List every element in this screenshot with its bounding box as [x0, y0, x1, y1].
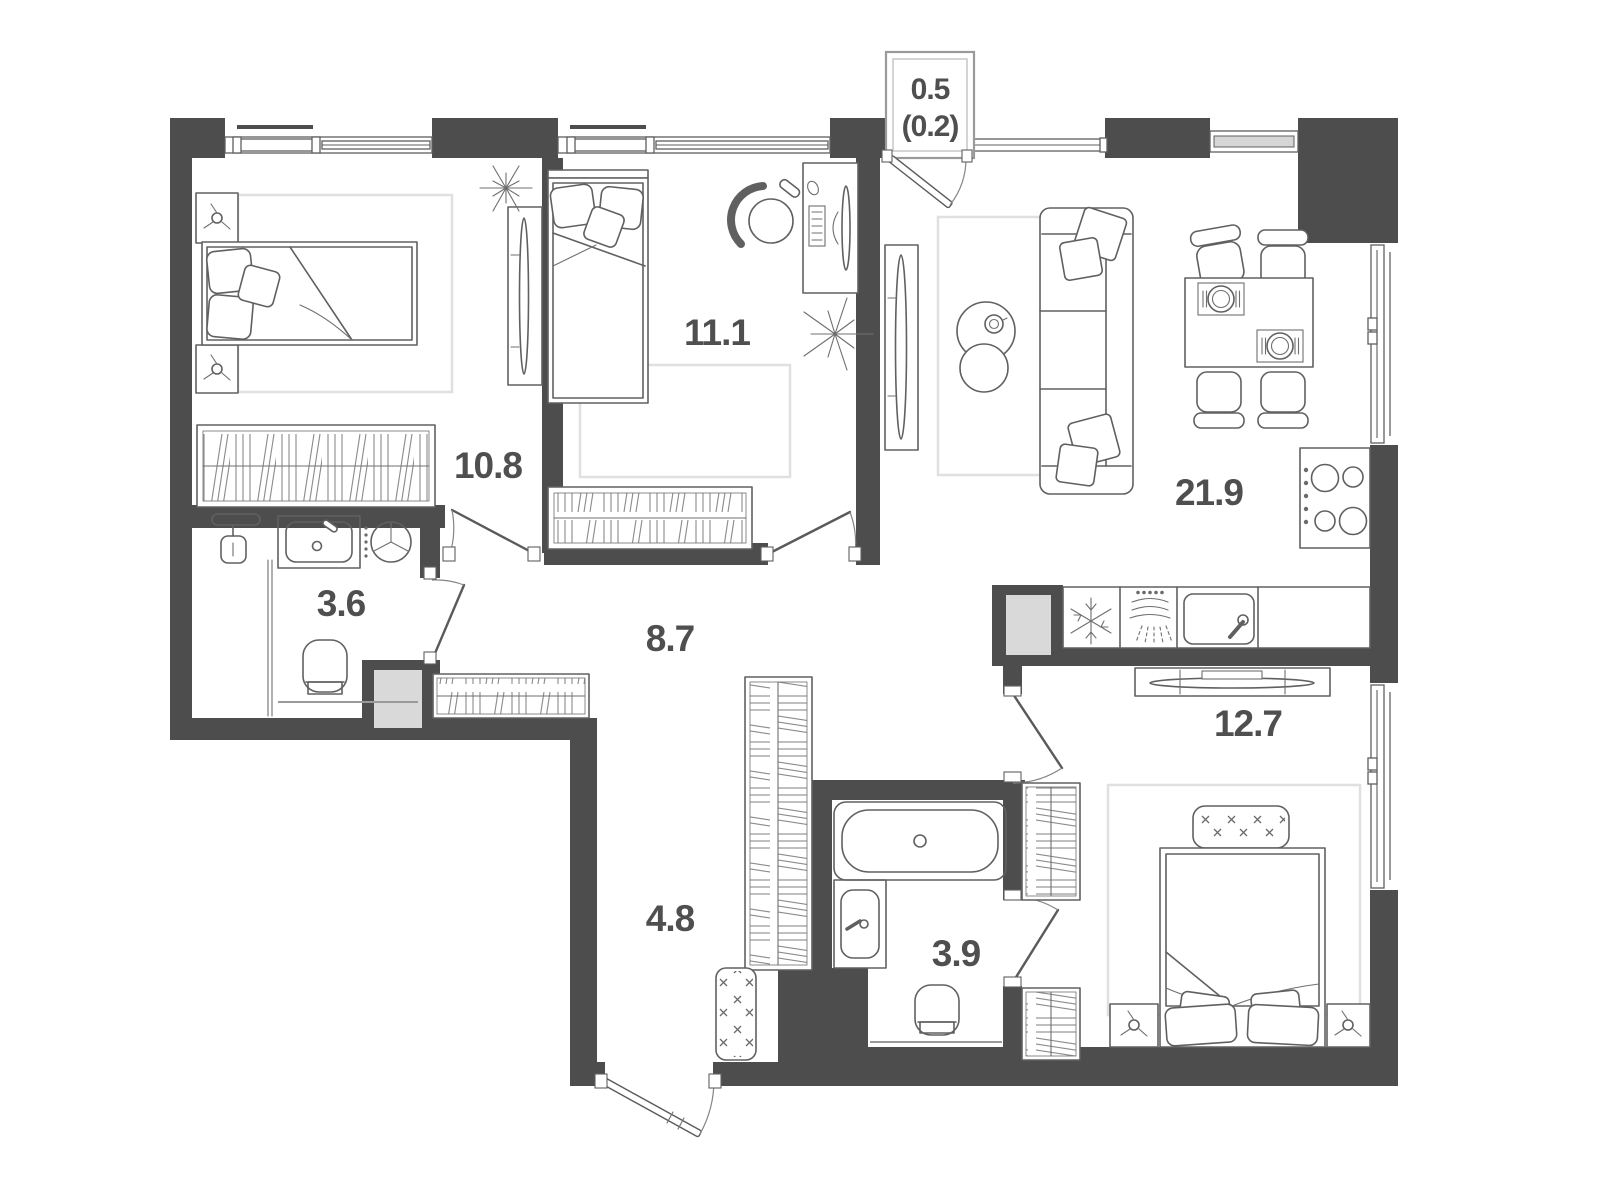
shoe-cabinet — [433, 674, 589, 718]
wardrobe-bedroom-3b — [1022, 988, 1080, 1060]
kitchen-counter — [1063, 587, 1370, 648]
duct-hallway — [374, 670, 422, 728]
balcony-area-label: 0.5 — [911, 73, 950, 106]
bed-2 — [548, 170, 648, 403]
bed-bench — [1193, 806, 1289, 848]
balcony-area-secondary-label: (0.2) — [902, 110, 959, 143]
wardrobe-bedroom-2 — [548, 487, 752, 549]
tv-unit-living — [885, 245, 918, 450]
tv-unit-bedroom-1 — [508, 207, 542, 385]
duct-kitchen — [1006, 595, 1051, 655]
place-setting — [1198, 283, 1244, 315]
nightstand-1a — [196, 193, 238, 243]
door-bathroom-left — [424, 567, 464, 664]
glass-partition — [268, 560, 272, 716]
label-living-area: 21.9 — [1175, 472, 1243, 513]
bathtub — [834, 802, 1006, 880]
bed-pillow — [1247, 1004, 1319, 1046]
place-setting — [1257, 330, 1303, 362]
door-bathroom-right — [1004, 890, 1058, 987]
nightstand-3b — [1327, 1004, 1370, 1047]
balcony: 0.5 (0.2) — [886, 52, 974, 158]
window-bedroom-2 — [558, 125, 830, 153]
bed-3 — [1160, 848, 1325, 1047]
window-living-top — [966, 138, 1107, 152]
door-entry — [595, 1074, 721, 1137]
tv-shelf-bedroom-3 — [1135, 668, 1330, 696]
label-bathroom-right-area: 3.9 — [932, 933, 981, 974]
label-bedroom-1-area: 10.8 — [454, 445, 522, 486]
sofa — [1040, 206, 1133, 494]
bathroom-sink-right — [834, 880, 886, 968]
floor-plan-page: 0.5 (0.2) — [0, 0, 1600, 1200]
sofa-pillow — [1056, 444, 1099, 487]
door-bedroom-1 — [443, 510, 540, 561]
label-hallway-area: 8.7 — [646, 618, 694, 659]
dining-set — [1185, 224, 1313, 428]
coffee-tables — [957, 302, 1015, 392]
door-bedroom-2 — [761, 512, 861, 561]
desk — [803, 163, 858, 293]
bedroom-2-furniture — [548, 163, 873, 549]
window-bedroom-3-right — [1368, 685, 1390, 888]
window-living-right — [1368, 245, 1390, 443]
sofa-pillow — [1059, 237, 1103, 281]
window-bedroom-1 — [225, 125, 432, 153]
wardrobe-bedroom-3a — [1022, 783, 1080, 900]
nightstand-3a — [1110, 1004, 1158, 1047]
window-dining-top — [1210, 131, 1298, 152]
label-bedroom-3-area: 12.7 — [1214, 703, 1282, 744]
toilet-right — [915, 985, 959, 1035]
bed-pillow — [1165, 1004, 1237, 1047]
dining-chair — [1194, 372, 1244, 428]
desk-chair — [731, 178, 801, 244]
nightstand-1b — [196, 345, 238, 393]
door-bedroom-3 — [1004, 686, 1062, 783]
plant-bedroom-1 — [480, 166, 532, 211]
floor-plan-canvas: 0.5 (0.2) — [0, 0, 1600, 1200]
label-bathroom-left-area: 3.6 — [317, 583, 366, 624]
tall-wardrobe — [745, 677, 812, 970]
dining-chair — [1258, 372, 1308, 428]
toilet-left — [303, 640, 347, 694]
entry-ottoman — [716, 968, 756, 1060]
wardrobe-bedroom-1 — [197, 425, 435, 507]
stove — [1300, 448, 1370, 548]
bedroom-3-furniture — [1022, 668, 1370, 1060]
label-bedroom-2-area: 11.1 — [684, 312, 750, 353]
bed-1 — [202, 242, 417, 345]
label-corridor-area: 4.8 — [646, 898, 695, 939]
living-room-furniture — [885, 206, 1370, 648]
